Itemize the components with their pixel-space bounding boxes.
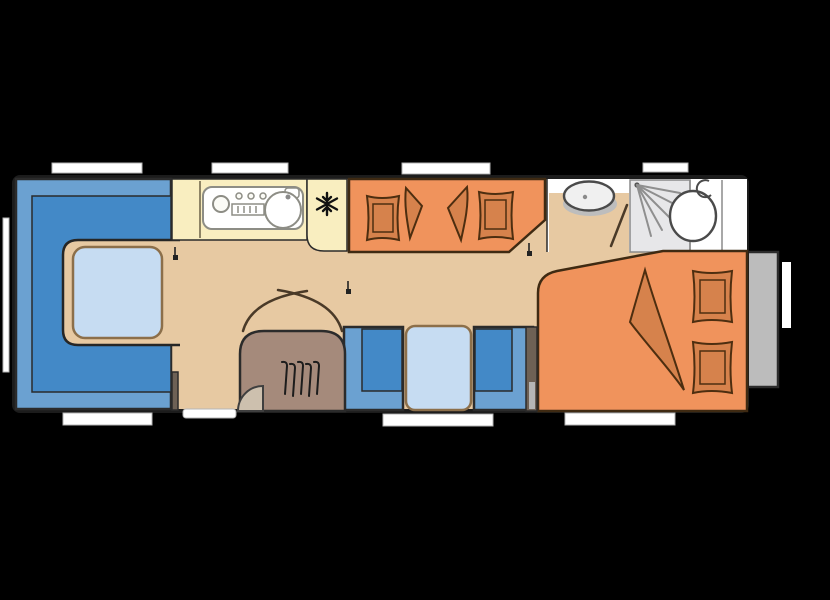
window-top-2 — [212, 163, 288, 173]
bunk-pillow-2 — [479, 192, 513, 239]
kitchen-sink — [265, 192, 301, 228]
stove-burner-icon — [213, 196, 229, 212]
stove-knob-2 — [248, 193, 254, 199]
stove-grill — [232, 204, 264, 215]
stove-knob-1 — [236, 193, 242, 199]
window-top-4 — [643, 163, 688, 172]
washbasin — [564, 182, 614, 211]
exterior-storage-box — [744, 252, 778, 387]
window-bottom-2 — [383, 414, 493, 426]
entry-door-step — [183, 409, 236, 418]
rear-bed-pillow-1 — [693, 271, 732, 322]
middle-seat-2-cushion — [475, 329, 512, 391]
bunk-pillow-1 — [367, 196, 399, 240]
sink-drain-dot — [286, 195, 291, 200]
bedroom-wall-stub-step — [529, 382, 535, 409]
stove-knob-3 — [260, 193, 266, 199]
window-bottom-1 — [63, 413, 152, 425]
floorplan-canvas — [0, 0, 830, 600]
window-left — [3, 218, 9, 372]
middle-dinette-table — [406, 326, 471, 410]
window-top-1 — [52, 163, 142, 173]
rear-bed-pillow-2 — [693, 342, 732, 393]
window-top-3 — [402, 163, 490, 174]
caravan-floorplan — [0, 0, 830, 600]
window-bottom-3 — [565, 413, 675, 425]
entry-wall-stub — [172, 372, 178, 410]
toilet — [670, 191, 716, 241]
window-right — [782, 262, 791, 328]
front-dinette-table — [73, 247, 162, 338]
middle-seat-1-cushion — [362, 329, 402, 391]
washbasin-drain-dot — [583, 195, 587, 199]
